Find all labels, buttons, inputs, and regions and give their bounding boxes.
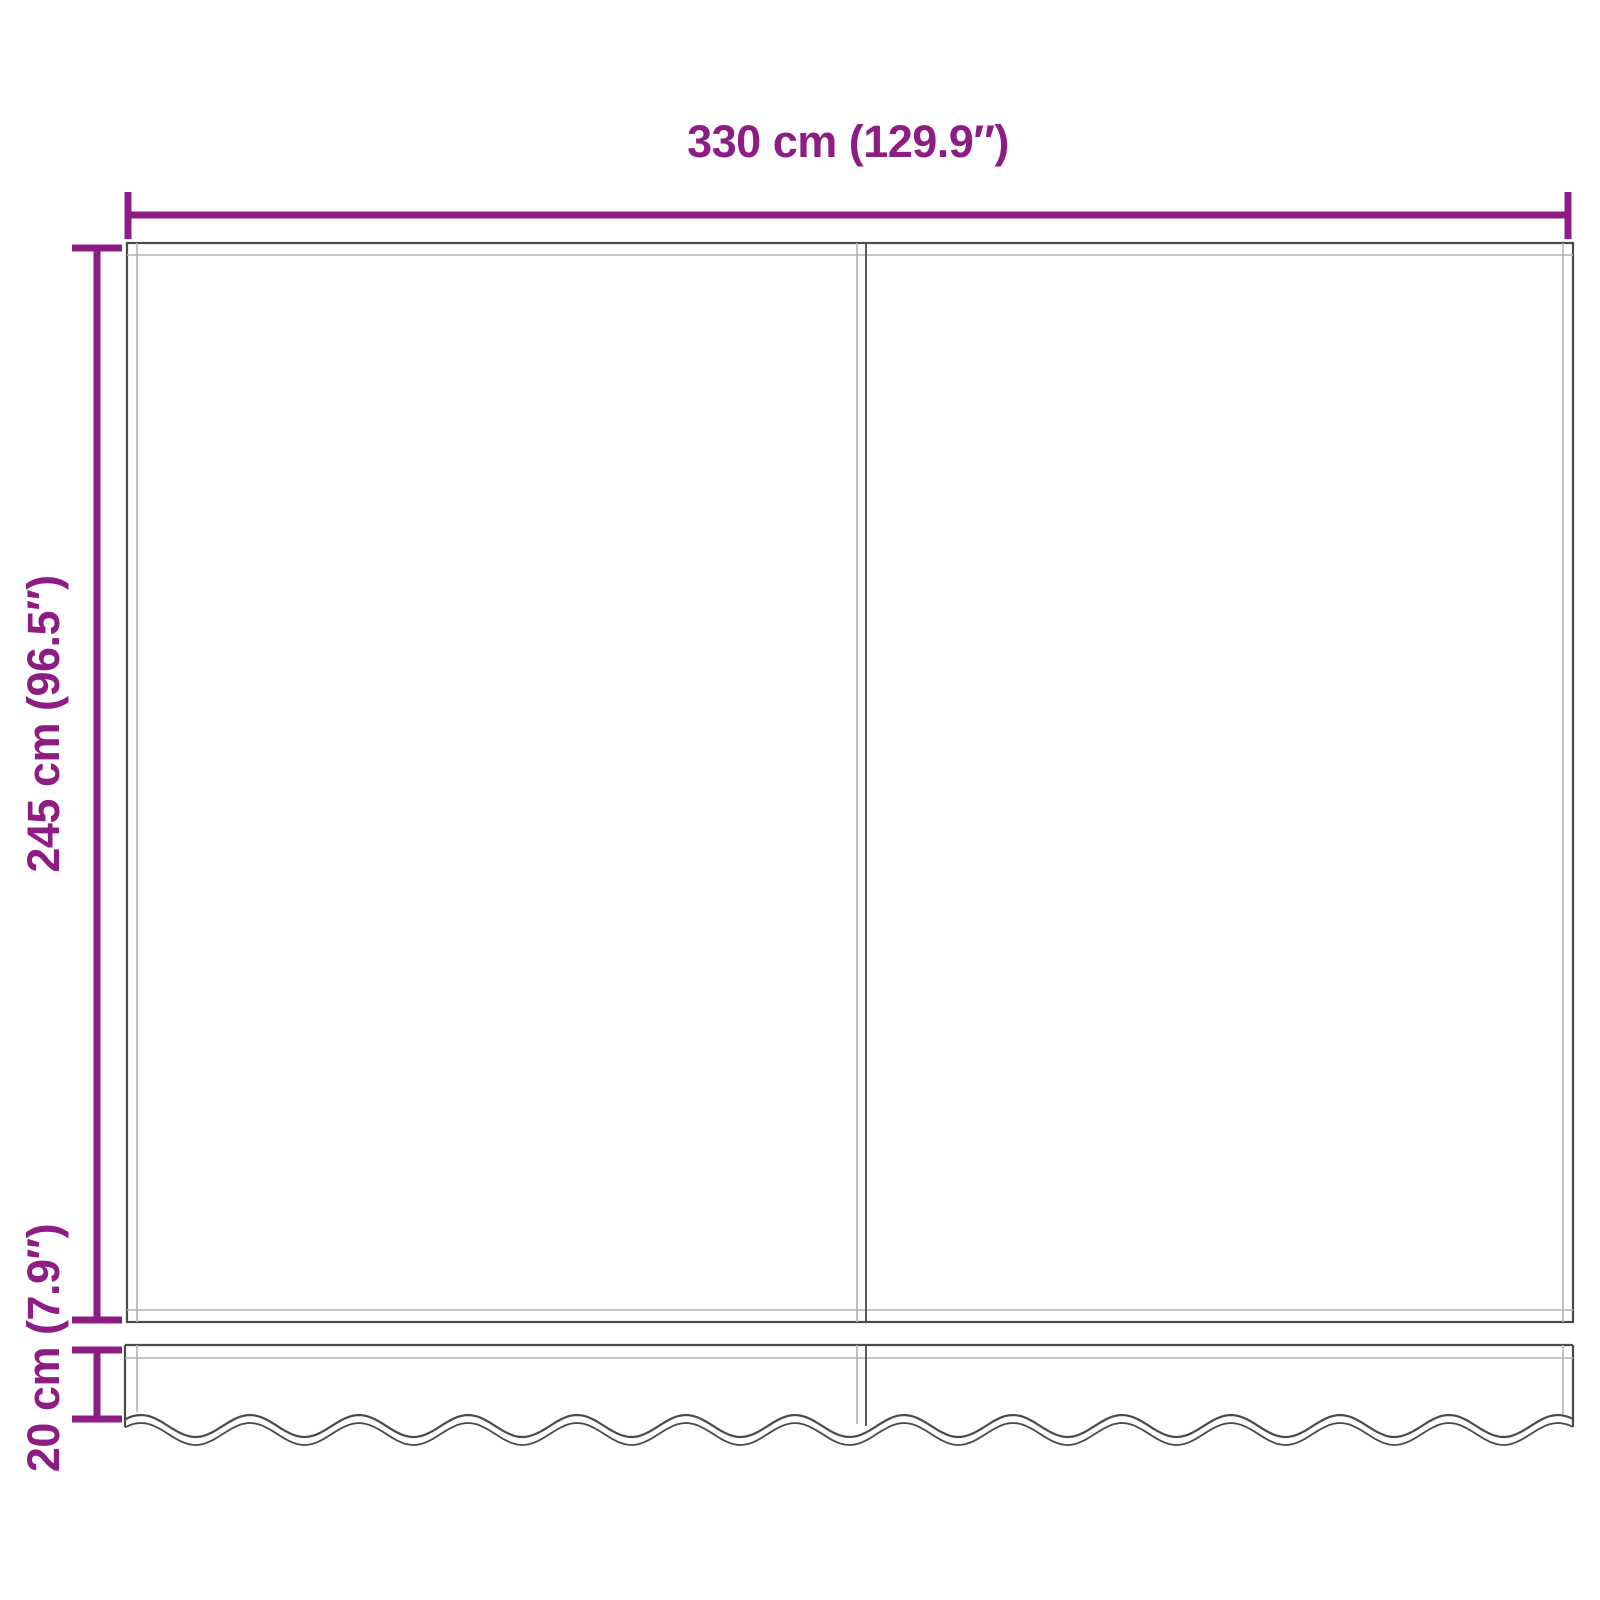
height-dimension-line xyxy=(72,248,122,1320)
fabric-center-seam xyxy=(857,243,866,1322)
valance-height-dimension-line xyxy=(72,1350,122,1419)
height-dimension-label: 245 cm (96.5″) xyxy=(14,374,74,1074)
valance-wavy-edge-inner xyxy=(125,1423,1573,1445)
valance-wavy-edge-outer xyxy=(125,1415,1573,1437)
valance-height-dimension-label: 20 cm (7.9″) xyxy=(14,998,74,1600)
width-dimension-label: 330 cm (129.9″) xyxy=(448,112,1248,172)
valance-center-seam xyxy=(857,1345,866,1426)
valance xyxy=(125,1345,1573,1445)
width-dimension-line xyxy=(128,192,1568,239)
diagram-linework xyxy=(0,0,1600,1600)
fabric-panel-outline xyxy=(127,243,1573,1322)
awning-fabric-dimension-diagram: 330 cm (129.9″) 245 cm (96.5″) 20 cm (7.… xyxy=(0,0,1600,1600)
fabric-panel xyxy=(127,243,1573,1322)
